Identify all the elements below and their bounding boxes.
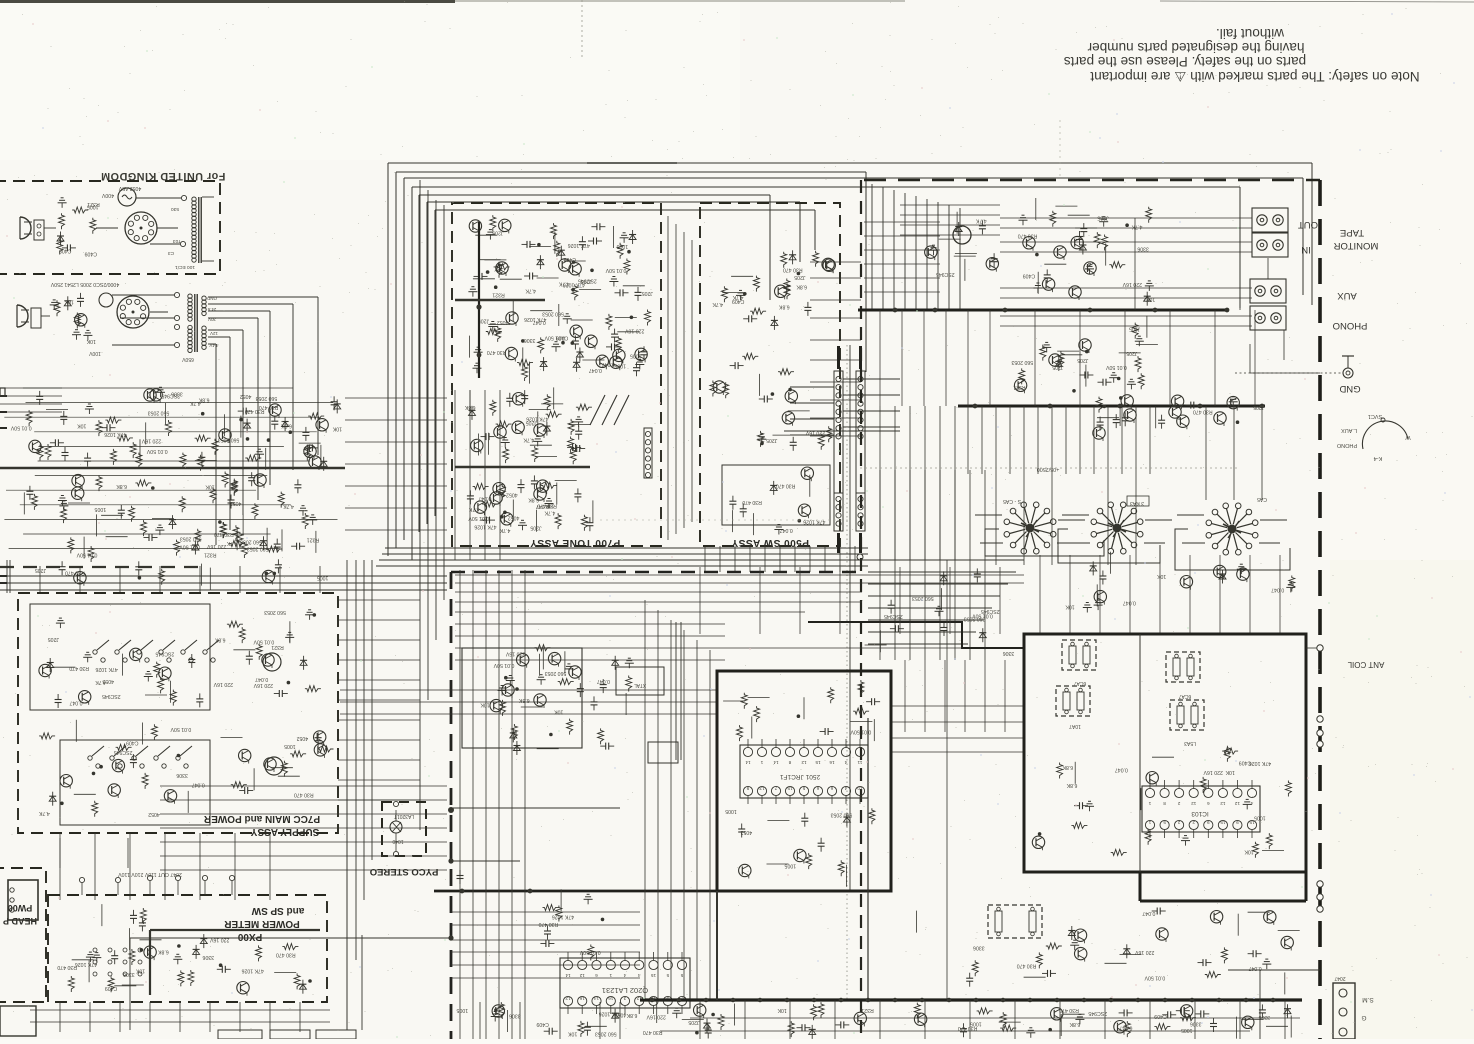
svg-text:4.7K: 4.7K — [525, 288, 536, 294]
svg-text:12: 12 — [565, 996, 571, 1001]
svg-text:560 2053: 560 2053 — [180, 535, 202, 541]
svg-text:560 2053: 560 2053 — [1011, 359, 1033, 365]
svg-text:R30 470: R30 470 — [1059, 1007, 1079, 1013]
svg-text:220 16V: 220 16V — [624, 327, 644, 333]
svg-text:47K 1026: 47K 1026 — [75, 961, 97, 967]
svg-text:R321: R321 — [861, 1007, 874, 1013]
svg-text:13: 13 — [759, 786, 765, 791]
svg-text:C3: C3 — [168, 250, 174, 256]
svg-text:8: 8 — [788, 760, 791, 765]
svg-text:and SP SW: and SP SW — [251, 905, 304, 916]
svg-text:6: 6 — [816, 786, 819, 791]
svg-text:4052: 4052 — [615, 1011, 627, 1017]
svg-text:2047 OUT 110V 210V 110V: 2047 OUT 110V 210V 110V — [118, 871, 182, 877]
svg-text:15: 15 — [1249, 820, 1255, 825]
svg-text:4: 4 — [844, 760, 847, 765]
svg-text:3306: 3306 — [171, 390, 183, 396]
svg-text:0.047: 0.047 — [255, 676, 268, 682]
svg-text:1005: 1005 — [725, 808, 737, 814]
svg-text:47K 1026: 47K 1026 — [95, 666, 117, 672]
svg-text:J205: J205 — [794, 274, 805, 280]
svg-text:0.01 50V: 0.01 50V — [76, 551, 97, 557]
svg-text:J205: J205 — [642, 290, 653, 296]
svg-text:10A7: 10A7 — [1069, 723, 1081, 729]
svg-text:C409: C409 — [1239, 759, 1252, 765]
svg-text:4: 4 — [637, 973, 640, 978]
svg-text:T03: T03 — [173, 238, 182, 244]
svg-text:P700 TONE ASSY: P700 TONE ASSY — [530, 537, 620, 548]
svg-text:R30 470: R30 470 — [69, 665, 89, 671]
svg-text:1: 1 — [1148, 820, 1151, 825]
svg-text:0.047: 0.047 — [192, 782, 205, 788]
svg-text:47K 1026: 47K 1026 — [241, 967, 263, 973]
svg-text:4.7K: 4.7K — [283, 503, 294, 509]
svg-text:4: 4 — [844, 786, 847, 791]
svg-text:47K 1026: 47K 1026 — [552, 913, 574, 919]
svg-text:6.8K: 6.8K — [116, 483, 127, 489]
svg-text:IN: IN — [1301, 244, 1311, 255]
svg-text:4.7K: 4.7K — [226, 540, 237, 546]
svg-text:0.047: 0.047 — [69, 700, 82, 706]
svg-text:220 16V: 220 16V — [1134, 949, 1154, 955]
svg-text:6: 6 — [595, 973, 598, 978]
svg-text:12: 12 — [801, 760, 807, 765]
svg-text:6.8K: 6.8K — [1069, 1021, 1080, 1027]
svg-text:4052: 4052 — [148, 811, 160, 817]
svg-text:C409: C409 — [536, 1021, 549, 1027]
svg-text:4052: 4052 — [297, 735, 309, 741]
svg-text:S.M: S.M — [1362, 996, 1374, 1003]
svg-text:10K: 10K — [1156, 573, 1166, 579]
svg-text:R30 470: R30 470 — [487, 349, 507, 355]
svg-text:4.7K: 4.7K — [712, 301, 723, 307]
svg-text:0.01 50V: 0.01 50V — [1105, 364, 1126, 370]
svg-text:R30 470: R30 470 — [1018, 233, 1038, 239]
svg-text:6: 6 — [1207, 801, 1210, 806]
svg-text:220 16V: 220 16V — [206, 543, 226, 549]
svg-text:0.047: 0.047 — [589, 367, 602, 373]
svg-text:4.7K: 4.7K — [95, 679, 106, 685]
svg-text:W: W — [1405, 434, 1411, 440]
svg-text:10K: 10K — [568, 1031, 578, 1037]
svg-text:4: 4 — [1250, 801, 1253, 806]
svg-text:PHONO: PHONO — [1333, 320, 1368, 331]
svg-text:2SC945: 2SC945 — [936, 271, 955, 277]
svg-text:3306: 3306 — [509, 1013, 521, 1019]
svg-text:10K: 10K — [332, 425, 342, 431]
svg-text:C409: C409 — [556, 335, 569, 341]
svg-text:Q202 LA1231: Q202 LA1231 — [602, 986, 648, 995]
svg-text:3306: 3306 — [524, 337, 536, 343]
svg-text:GND: GND — [1339, 383, 1360, 394]
svg-text:2SC945: 2SC945 — [114, 749, 133, 755]
svg-text:6.8K: 6.8K — [796, 284, 807, 290]
svg-text:4052 A5V: 4052 A5V — [118, 185, 141, 191]
svg-text:0.047: 0.047 — [536, 503, 549, 509]
svg-text:1005: 1005 — [1181, 1027, 1193, 1033]
svg-text:47K 1026: 47K 1026 — [526, 415, 548, 421]
svg-text:G: G — [1361, 1014, 1366, 1021]
svg-text:1005: 1005 — [970, 1020, 982, 1026]
svg-text:J205: J205 — [1077, 357, 1088, 363]
svg-text:9: 9 — [1236, 820, 1239, 825]
svg-text:1005: 1005 — [87, 204, 99, 210]
svg-text:J205: J205 — [1097, 214, 1108, 220]
svg-text:560 2053: 560 2053 — [255, 395, 277, 401]
svg-text:3306: 3306 — [1003, 650, 1015, 656]
svg-text:12: 12 — [1220, 801, 1226, 806]
svg-text:1005: 1005 — [784, 862, 796, 868]
svg-text:R30 470: R30 470 — [643, 1029, 663, 1035]
svg-text:2: 2 — [1177, 820, 1180, 825]
svg-text:1005: 1005 — [284, 743, 296, 749]
svg-text:4.7K: 4.7K — [523, 436, 534, 442]
svg-text:16: 16 — [829, 760, 835, 765]
svg-text:8: 8 — [1163, 801, 1166, 806]
svg-text:SVC1: SVC1 — [1368, 413, 1382, 419]
svg-text:220 16V: 220 16V — [1122, 281, 1142, 287]
svg-text:10K: 10K — [1244, 848, 1254, 854]
svg-text:1005: 1005 — [456, 1007, 468, 1013]
svg-text:9: 9 — [1207, 820, 1210, 825]
svg-text:R321: R321 — [492, 292, 505, 298]
svg-text:220 16V: 220 16V — [805, 429, 825, 435]
svg-text:R30 470: R30 470 — [538, 921, 558, 927]
svg-text:R321: R321 — [307, 536, 320, 542]
svg-text:1005: 1005 — [94, 506, 106, 512]
svg-text:10K: 10K — [77, 423, 87, 429]
svg-text:1: 1 — [609, 973, 612, 978]
svg-text:560 2053: 560 2053 — [545, 670, 567, 676]
svg-text:R30 470: R30 470 — [1193, 409, 1213, 415]
svg-text:PX00: PX00 — [237, 931, 262, 942]
svg-text:4052: 4052 — [506, 492, 518, 498]
svg-text:3306: 3306 — [973, 945, 985, 951]
svg-text:R30 470: R30 470 — [783, 267, 803, 273]
svg-text:PHONO: PHONO — [1336, 442, 1357, 448]
svg-text:10K: 10K — [777, 1007, 787, 1013]
svg-text:without fail.: without fail. — [1216, 26, 1285, 41]
svg-text:560 2053: 560 2053 — [542, 311, 564, 317]
svg-text:0.01 50V: 0.01 50V — [10, 425, 31, 431]
svg-text:0.01 50V: 0.01 50V — [1144, 975, 1165, 981]
svg-text:220 16V: 220 16V — [253, 682, 273, 688]
svg-text:10K: 10K — [135, 968, 145, 974]
svg-text:3306: 3306 — [202, 954, 214, 960]
svg-text:R30 470: R30 470 — [276, 951, 296, 957]
svg-text:6CA7: 6CA7 — [1179, 693, 1192, 699]
svg-text:ANT COIL: ANT COIL — [1347, 660, 1384, 669]
svg-text:1040: 1040 — [392, 838, 403, 844]
svg-text:47K 1026: 47K 1026 — [568, 242, 590, 248]
svg-text:J205: J205 — [35, 567, 46, 573]
svg-text:C409: C409 — [59, 247, 72, 253]
svg-text:220 16V: 220 16V — [646, 1014, 666, 1020]
svg-text:0.01 50V: 0.01 50V — [972, 612, 993, 618]
svg-text:530: 530 — [171, 206, 179, 212]
svg-text:4052: 4052 — [508, 515, 520, 521]
svg-text:J205: J205 — [580, 278, 591, 284]
svg-text:+05/2500: +05/2500 — [1037, 466, 1060, 472]
svg-text:POWER METER: POWER METER — [223, 918, 299, 929]
svg-text:parts on the safety. Please us: parts on the safety. Please use the part… — [1064, 54, 1307, 69]
svg-text:MONITOR: MONITOR — [1334, 240, 1379, 251]
svg-text:2047: 2047 — [1334, 975, 1345, 981]
svg-text:560 2053: 560 2053 — [148, 410, 170, 416]
svg-text:14: 14 — [745, 760, 751, 765]
svg-text:having the designated parts nu: having the designated parts number — [1087, 40, 1304, 55]
svg-text:P500 SW ASSY: P500 SW ASSY — [731, 537, 809, 548]
svg-text:OUT: OUT — [1298, 219, 1318, 230]
svg-text:4.7K: 4.7K — [975, 218, 986, 224]
svg-text:12: 12 — [1191, 801, 1197, 806]
svg-text:6.8K: 6.8K — [778, 304, 789, 310]
svg-text:15: 15 — [1220, 820, 1226, 825]
svg-text:2SC945: 2SC945 — [102, 693, 121, 699]
svg-text:220 16V: 220 16V — [141, 438, 161, 444]
svg-text:1: 1 — [760, 760, 763, 765]
svg-text:4.7K: 4.7K — [499, 527, 510, 533]
svg-text:11: 11 — [857, 760, 862, 765]
svg-text:L.AUX: L.AUX — [1341, 427, 1357, 433]
svg-text:R321: R321 — [204, 551, 217, 557]
svg-text:J205: J205 — [48, 636, 59, 642]
svg-text:220 16V: 220 16V — [1203, 769, 1223, 775]
svg-text:J205: J205 — [688, 1019, 699, 1025]
svg-text:47K 1026: 47K 1026 — [803, 519, 825, 525]
svg-text:6.8K: 6.8K — [1066, 782, 1077, 788]
svg-text:R321: R321 — [1013, 384, 1026, 390]
svg-text:R30 470: R30 470 — [776, 483, 796, 489]
svg-text:400V: 400V — [101, 192, 114, 198]
svg-text:220 16V: 220 16V — [505, 651, 525, 657]
svg-text:16: 16 — [608, 996, 614, 1001]
svg-text:6.8K: 6.8K — [214, 637, 225, 643]
svg-text:3306: 3306 — [1190, 1021, 1202, 1027]
svg-text:XTAL: XTAL — [634, 682, 646, 688]
svg-text:12V: 12V — [210, 331, 218, 336]
svg-text:R30 470: R30 470 — [1017, 963, 1037, 969]
svg-text:K-4: K-4 — [1374, 455, 1383, 461]
svg-text:6.8K: 6.8K — [158, 949, 169, 955]
svg-text:IC103: IC103 — [1191, 810, 1209, 817]
svg-text:S - CA5: S - CA5 — [1003, 498, 1021, 504]
svg-text:2: 2 — [1177, 801, 1180, 806]
svg-text:R30 470: R30 470 — [294, 791, 314, 797]
svg-text:10K: 10K — [1225, 769, 1235, 775]
svg-text:R30 470: R30 470 — [57, 964, 77, 970]
svg-text:3: 3 — [623, 996, 626, 1001]
svg-text:5: 5 — [666, 973, 669, 978]
svg-text:P7CC MAIN and POWER: P7CC MAIN and POWER — [203, 813, 320, 824]
svg-text:5: 5 — [1163, 820, 1166, 825]
svg-text:0.047: 0.047 — [1123, 599, 1136, 605]
svg-text:4.7K: 4.7K — [1131, 223, 1142, 229]
svg-text:15: 15 — [651, 973, 657, 978]
svg-text:220 16V: 220 16V — [213, 681, 233, 687]
svg-text:4.7K: 4.7K — [558, 280, 569, 286]
svg-text:6: 6 — [830, 786, 833, 791]
svg-text:4.7K: 4.7K — [190, 400, 201, 406]
svg-text:L5A3: L5A3 — [1184, 740, 1196, 746]
svg-text:PYCO STEREO: PYCO STEREO — [370, 866, 439, 877]
svg-text:100 EC/1: 100 EC/1 — [175, 264, 195, 270]
svg-text:0.01 50V: 0.01 50V — [605, 267, 626, 273]
svg-text:4000/2SC0 2005 L2541 250V: 4000/2SC0 2005 L2541 250V — [50, 281, 119, 287]
svg-text:4: 4 — [623, 973, 626, 978]
svg-text:4.7K: 4.7K — [732, 294, 743, 300]
svg-text:TAPE: TAPE — [1340, 227, 1364, 238]
svg-text:14: 14 — [594, 996, 600, 1001]
svg-text:2SC945: 2SC945 — [1088, 1010, 1107, 1016]
svg-text:6.8K: 6.8K — [626, 1012, 637, 1018]
svg-text:5: 5 — [802, 786, 805, 791]
svg-text:2: 2 — [1192, 820, 1195, 825]
svg-text:1: 1 — [1148, 801, 1151, 806]
svg-text:J205: J205 — [1126, 350, 1137, 356]
svg-text:J205: J205 — [766, 437, 777, 443]
svg-text:1005: 1005 — [317, 575, 329, 581]
svg-text:12: 12 — [1234, 801, 1240, 806]
svg-text:4052: 4052 — [240, 393, 252, 399]
svg-text:2501 JRC1F1: 2501 JRC1F1 — [780, 773, 820, 780]
svg-text:J205: J205 — [530, 525, 541, 531]
svg-text:16: 16 — [579, 996, 585, 1001]
svg-text:14: 14 — [565, 973, 571, 978]
svg-text:6.8K: 6.8K — [1062, 764, 1073, 770]
svg-text:7: 7 — [774, 786, 777, 791]
svg-text:AUX: AUX — [1337, 290, 1357, 301]
svg-text:Note on safety: The parts mark: Note on safety: The parts marked with ⚠ … — [1090, 69, 1419, 84]
svg-text:0.047: 0.047 — [533, 319, 546, 325]
svg-text:3306: 3306 — [176, 772, 188, 778]
svg-text:0.047: 0.047 — [1271, 587, 1284, 593]
svg-text:9: 9 — [746, 786, 749, 791]
svg-text:0.047: 0.047 — [597, 678, 610, 684]
svg-text:3306: 3306 — [1137, 246, 1149, 252]
svg-text:J205: J205 — [492, 230, 503, 236]
svg-text:6CA7: 6CA7 — [1074, 680, 1087, 686]
svg-text:12: 12 — [579, 973, 585, 978]
svg-text:10K: 10K — [86, 338, 96, 344]
svg-text:10: 10 — [857, 786, 863, 791]
svg-text:4.7K: 4.7K — [544, 510, 555, 516]
svg-text:0.01 50V: 0.01 50V — [493, 662, 514, 668]
svg-text:0.047: 0.047 — [1115, 767, 1128, 773]
svg-text:4052: 4052 — [741, 829, 753, 835]
svg-text:5: 5 — [680, 973, 683, 978]
svg-text:2SC945: 2SC945 — [155, 650, 174, 656]
svg-text:560 2053: 560 2053 — [264, 609, 286, 615]
svg-text:650V: 650V — [182, 356, 194, 362]
svg-text:0.01 50V: 0.01 50V — [146, 448, 167, 454]
svg-text:C409: C409 — [1023, 273, 1036, 279]
svg-text:0.01 50V: 0.01 50V — [170, 726, 191, 732]
svg-text:0.01 50V: 0.01 50V — [253, 639, 274, 645]
svg-text:560 2053: 560 2053 — [595, 1031, 617, 1037]
svg-text:15: 15 — [815, 760, 821, 765]
svg-text:3 KA3: 3 KA3 — [1130, 500, 1144, 506]
svg-text:15: 15 — [787, 786, 793, 791]
svg-text:R30 470: R30 470 — [742, 499, 762, 505]
svg-text:4.7K: 4.7K — [39, 810, 50, 816]
